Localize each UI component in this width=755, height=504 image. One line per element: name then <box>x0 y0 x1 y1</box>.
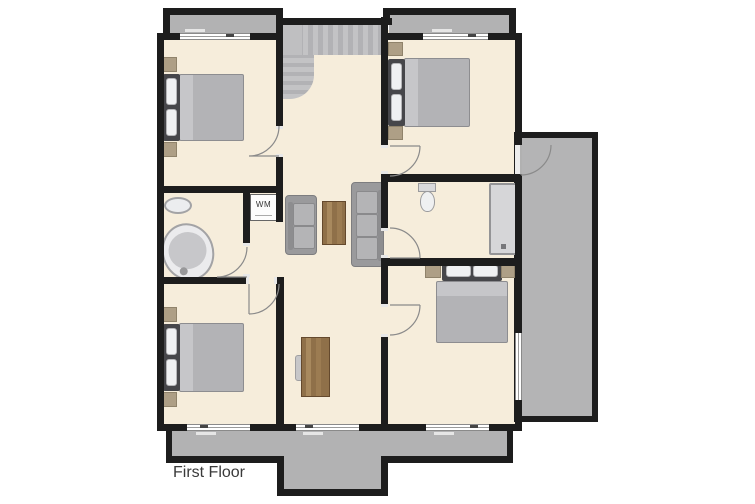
door-arc-bedroom-bottom-right <box>390 305 420 335</box>
floor-plan: WM <box>0 0 755 504</box>
door-arc-bathroom-left <box>217 247 247 277</box>
door-arc-bedroom-bottom-left <box>249 284 279 314</box>
door-arc-bedroom-top-right <box>390 146 420 176</box>
floor-title: First Floor <box>173 464 245 482</box>
door-arc-bathroom-right <box>390 228 420 258</box>
door-arc-bedroom-top-left <box>249 126 279 156</box>
door-swing-arcs <box>0 0 755 504</box>
door-arc-terrace <box>521 145 551 175</box>
